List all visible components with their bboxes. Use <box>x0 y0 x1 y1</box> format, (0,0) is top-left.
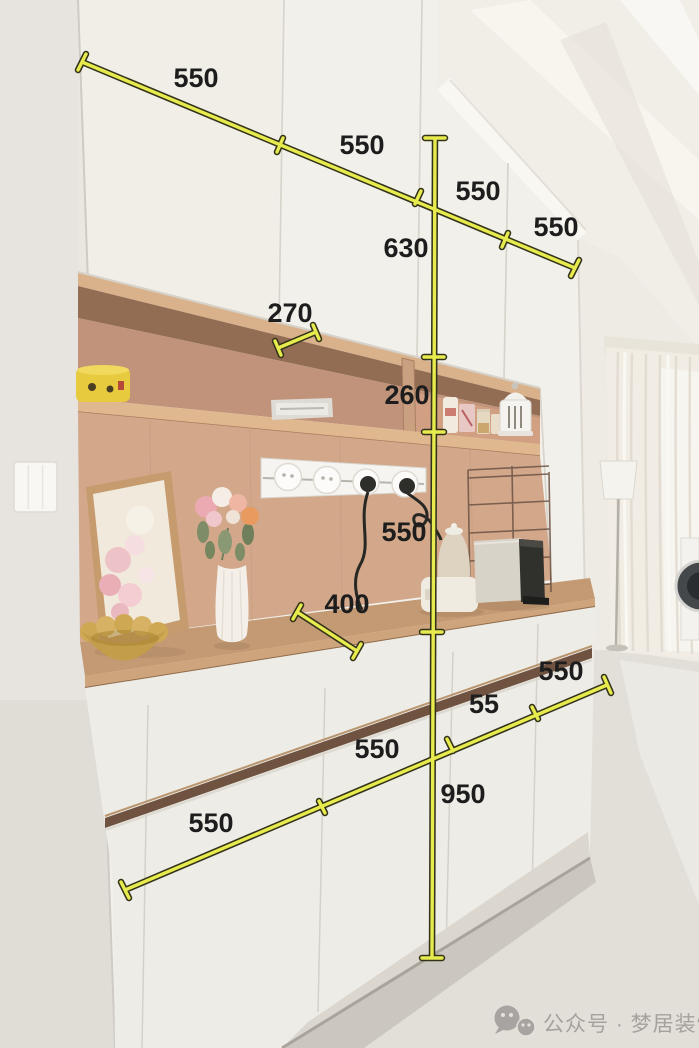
annotated-cabinet-photo: 550 550 550 550 630 270 260 550 400 550 … <box>0 0 699 1048</box>
grey-appliance <box>474 538 524 603</box>
rose-white <box>212 487 232 507</box>
plug-2 <box>399 478 415 494</box>
upper-left-door-shading <box>78 0 282 320</box>
wechat-bubble-small <box>517 1018 535 1036</box>
tin-art-3 <box>118 381 124 390</box>
jar-1-contents <box>478 423 489 433</box>
tin-art-2 <box>107 386 114 393</box>
label-base-550-mid: 550 <box>354 734 399 764</box>
label-base-55: 55 <box>469 689 499 719</box>
lamp-shade <box>600 461 637 499</box>
lantern-knob <box>512 383 519 390</box>
socket-2-hole-2 <box>329 477 333 481</box>
leaf-5 <box>235 543 245 561</box>
wechat-bubble-large <box>495 1006 520 1031</box>
socket-1-hole-2 <box>290 474 294 478</box>
label-550-vertical: 550 <box>381 517 426 547</box>
switch-plate <box>14 462 57 512</box>
vase-shadow <box>214 642 250 650</box>
label-950: 950 <box>440 779 485 809</box>
kettle-knob <box>451 523 457 529</box>
label-270: 270 <box>267 298 312 328</box>
art-flower-3 <box>99 574 121 596</box>
label-top-550-3: 550 <box>455 176 500 206</box>
lamp-base <box>606 645 628 652</box>
wechat-eye-1 <box>501 1013 505 1017</box>
leaf-2 <box>242 523 254 545</box>
leaf-1 <box>197 521 209 543</box>
light-switch <box>14 462 57 512</box>
socket-1-hole <box>282 473 286 477</box>
wechat-eye-2 <box>509 1013 513 1017</box>
wechat-eye-3 <box>521 1023 524 1026</box>
label-630: 630 <box>383 233 428 263</box>
yellow-tin <box>76 365 130 402</box>
rose-orange <box>241 507 259 525</box>
art-flower-5 <box>138 567 154 583</box>
scene-canvas: 550 550 550 550 630 270 260 550 400 550 … <box>0 0 699 1048</box>
socket-2 <box>314 467 341 494</box>
label-400: 400 <box>324 589 369 619</box>
rose-light <box>206 511 222 527</box>
bowl-interior <box>91 630 159 646</box>
label-top-550-2: 550 <box>339 130 384 160</box>
window-area <box>600 336 699 658</box>
watermark-text: 公众号 · 梦居装饰 <box>543 1013 699 1036</box>
wechat-eye-4 <box>527 1023 530 1026</box>
label-base-550-right: 550 <box>538 656 583 686</box>
leaf-4 <box>205 541 215 559</box>
rose-cream <box>226 510 240 524</box>
leaf-3 <box>218 530 232 554</box>
socket-1 <box>275 464 302 491</box>
lantern-base <box>498 431 533 436</box>
bottle-label <box>445 408 456 416</box>
coffee-body <box>519 539 545 603</box>
label-top-550-1: 550 <box>173 63 218 93</box>
label-top-550-4: 550 <box>533 212 578 242</box>
art-relief <box>126 506 154 534</box>
tin-lid <box>77 365 129 375</box>
label-260: 260 <box>384 380 429 410</box>
radio-grill <box>280 408 324 409</box>
appliance-body <box>474 538 524 603</box>
radio <box>271 398 333 420</box>
socket-2-hole <box>321 476 325 480</box>
tin-art-1 <box>88 383 96 391</box>
label-base-550-left: 550 <box>188 808 233 838</box>
plug-1 <box>360 476 376 492</box>
art-flower-2 <box>125 535 145 555</box>
